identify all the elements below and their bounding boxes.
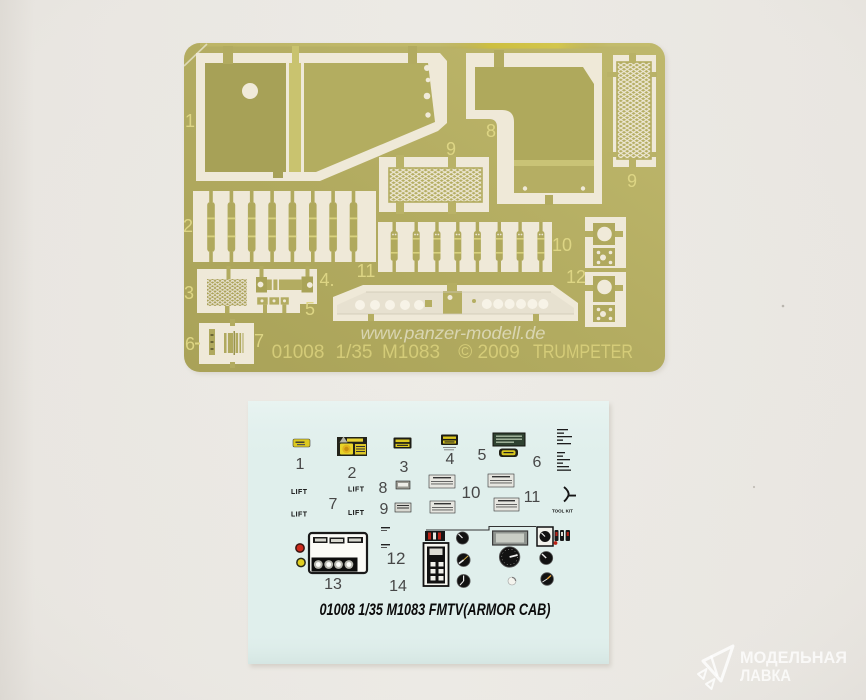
svg-text:5: 5 [478, 447, 487, 464]
svg-text:12: 12 [566, 267, 586, 287]
svg-text:8: 8 [486, 121, 496, 141]
svg-text:10: 10 [552, 235, 572, 255]
svg-text:6: 6 [185, 334, 195, 354]
svg-text:10: 10 [462, 483, 481, 502]
svg-text:13: 13 [324, 576, 342, 593]
svg-text:1: 1 [296, 456, 305, 473]
svg-text:ЛАВКА: ЛАВКА [740, 666, 791, 685]
svg-text:14: 14 [389, 578, 407, 595]
svg-text:9: 9 [627, 171, 637, 191]
svg-text:3: 3 [184, 283, 194, 303]
svg-text:11: 11 [357, 261, 376, 281]
svg-text:www.panzer-modell.de: www.panzer-modell.de [361, 323, 546, 343]
svg-text:2: 2 [348, 465, 357, 482]
svg-text:LIFT: LIFT [291, 489, 308, 496]
svg-text:LIFT: LIFT [348, 510, 365, 517]
svg-text:LIFT: LIFT [348, 487, 365, 494]
svg-text:3: 3 [400, 459, 409, 476]
svg-text:11: 11 [524, 489, 541, 506]
svg-text:LIFT: LIFT [291, 512, 308, 519]
svg-text:МОДЕЛЬНАЯ: МОДЕЛЬНАЯ [740, 648, 847, 667]
svg-text:7: 7 [254, 331, 264, 351]
svg-text:7: 7 [329, 496, 338, 513]
svg-text:TOOL KIT: TOOL KIT [552, 509, 573, 514]
svg-text:1: 1 [185, 111, 195, 131]
svg-text:4: 4 [446, 451, 455, 468]
svg-text:9: 9 [380, 501, 389, 518]
svg-text:2: 2 [183, 216, 193, 236]
svg-text:1/35: 1/35 [336, 342, 373, 363]
svg-text:01008: 01008 [272, 342, 325, 363]
svg-text:6: 6 [533, 454, 542, 471]
svg-text:TRUMPETER: TRUMPETER [533, 342, 633, 363]
svg-text:01008 1/35 M1083 FMTV(ARMOR C: 01008 1/35 M1083 FMTV(ARMOR CAB) [320, 601, 551, 619]
svg-text:5: 5 [305, 299, 315, 319]
svg-text:M1083: M1083 [382, 342, 440, 363]
svg-text:© 2009: © 2009 [458, 342, 520, 363]
svg-text:4.: 4. [319, 270, 334, 290]
svg-text:9: 9 [446, 139, 456, 159]
svg-text:8: 8 [379, 480, 388, 497]
svg-text:12: 12 [387, 549, 406, 568]
